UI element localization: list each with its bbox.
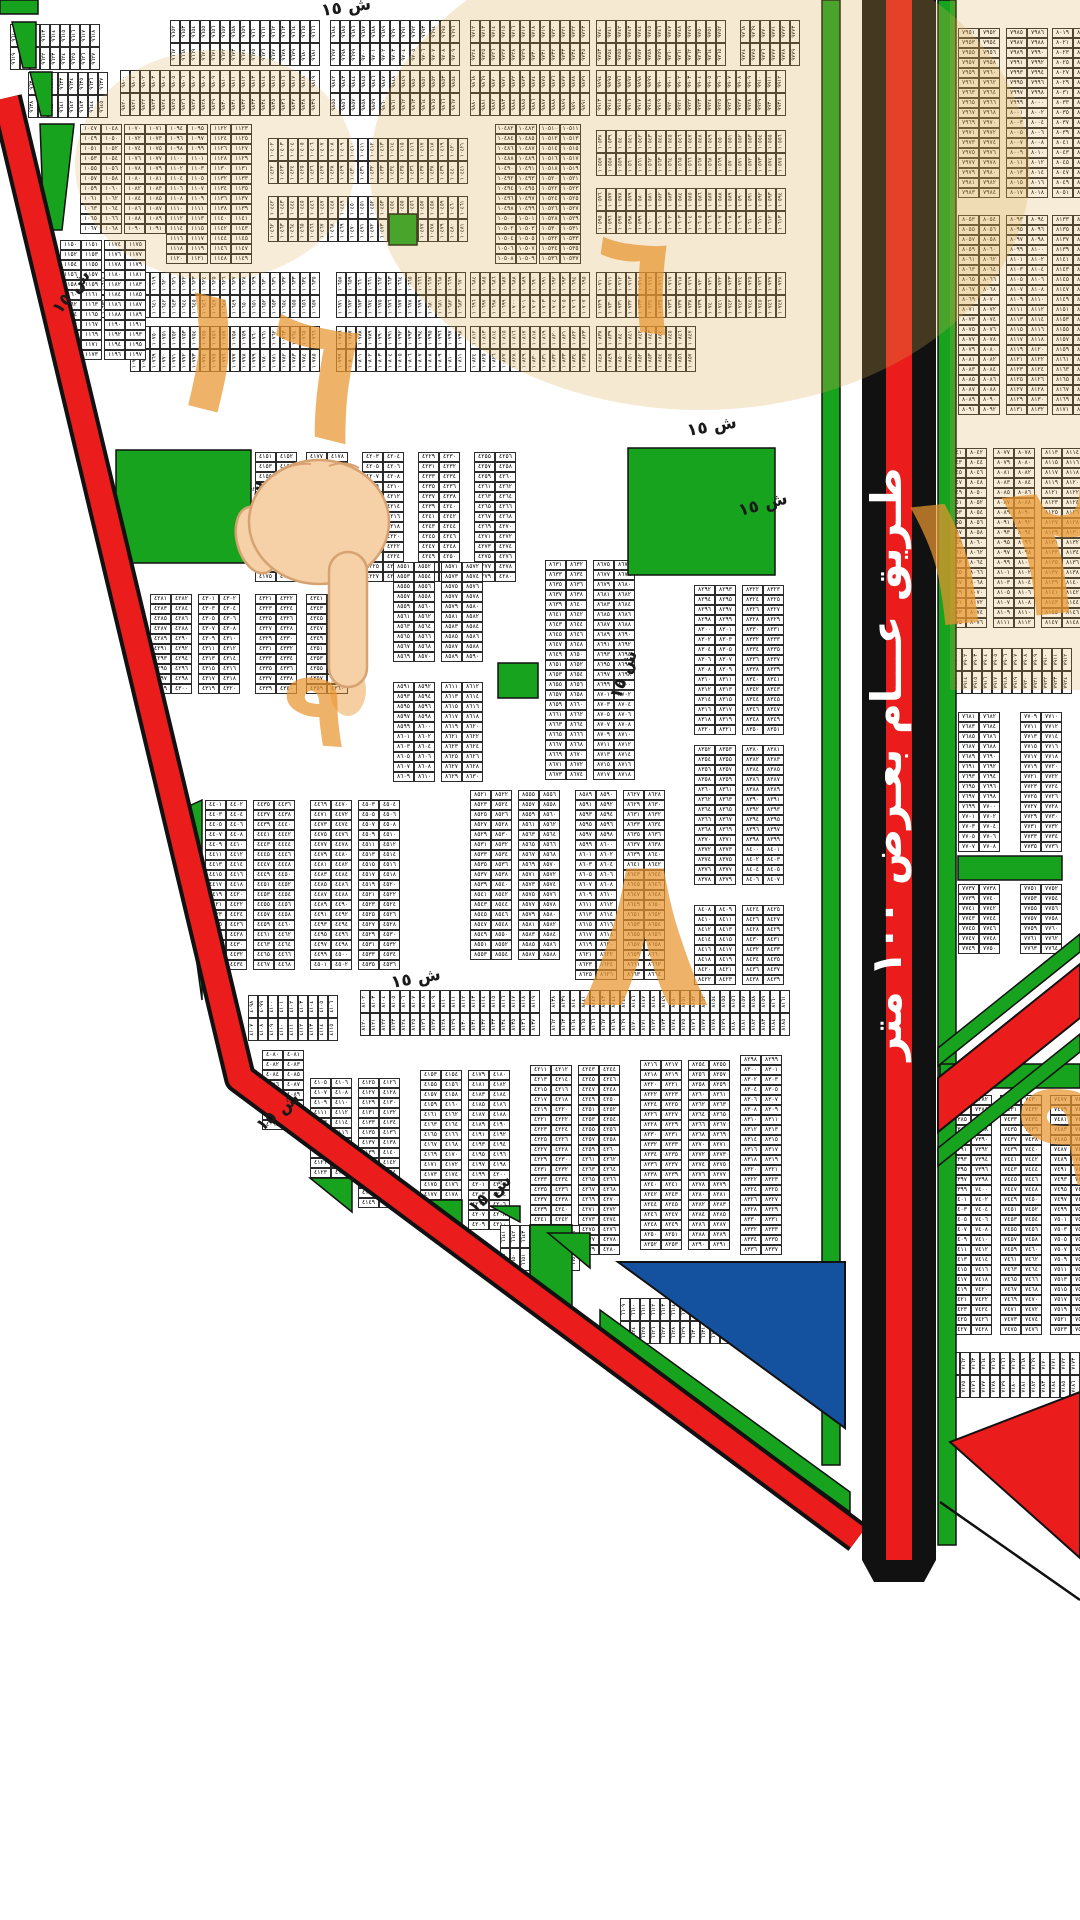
plot-cell[interactable]: ٨١٤٦ xyxy=(1073,275,1080,285)
plot-cell[interactable]: ١٠٧٥٨ xyxy=(230,326,240,349)
plot-cell[interactable]: ٨٤٣٥ xyxy=(763,955,784,965)
plot-cell[interactable]: ٨٦٨٩ xyxy=(593,630,614,640)
plot-cell[interactable]: ٧٤٥٣ xyxy=(1000,1215,1021,1225)
plot-cell[interactable]: ١٠٤٣٣ xyxy=(378,161,388,184)
plot-cell[interactable]: ٨٥٥٦ xyxy=(539,790,560,800)
plot-cell[interactable]: ٧٤٢٧ xyxy=(950,1325,971,1335)
plot-cell[interactable]: ٨٠٧١ xyxy=(958,305,979,315)
plot-cell[interactable]: ٩٦٧٣ xyxy=(230,43,240,66)
plot-cell[interactable]: ٤٤٣٦ xyxy=(274,800,295,810)
plot-cell[interactable]: ٤٢٨٥ xyxy=(150,614,171,624)
plot-cell[interactable]: ٤٣٢٨ xyxy=(276,624,297,634)
plot-cell[interactable]: ٨١١٨ xyxy=(1027,335,1048,345)
plot-cell[interactable]: ٤٢٢٢ xyxy=(551,1115,572,1125)
plot-cell[interactable]: ٩٦٨٩ xyxy=(380,20,390,43)
plot-cell[interactable]: ١١٩٥ xyxy=(125,340,146,350)
plot-cell[interactable]: ٤٤٦٥ xyxy=(253,950,274,960)
plot-cell[interactable]: ٧٤٠٥ xyxy=(950,1215,971,1225)
plot-cell[interactable]: ٤٤٠٦ xyxy=(226,820,247,830)
plot-cell[interactable]: ٨٥٧٩ xyxy=(518,910,539,920)
plot-cell[interactable]: ٨٥٨٨ xyxy=(539,950,560,960)
plot-cell[interactable]: ٤٤٨٢ xyxy=(331,860,352,870)
plot-cell[interactable]: ٨٢٤٥ xyxy=(661,1200,682,1210)
plot-cell[interactable]: ١٠٨٢٣ xyxy=(580,326,590,349)
plot-cell[interactable]: ١٠٥٢٧ xyxy=(560,204,581,214)
plot-cell[interactable]: ٤١١١ xyxy=(310,1108,331,1118)
plot-cell[interactable]: ٨٦١٣ xyxy=(441,692,462,702)
plot-cell[interactable]: ٤١٥١ xyxy=(255,452,276,462)
plot-cell[interactable]: ١٠٤١٨ xyxy=(428,138,438,161)
plot-cell[interactable]: ٨٣٨٦ xyxy=(742,775,763,785)
plot-cell[interactable]: ٨٦٢٧ xyxy=(441,762,462,772)
plot-cell[interactable]: ١١٧٢ xyxy=(60,350,81,360)
plot-cell[interactable]: ٤٢٣٨ xyxy=(551,1195,572,1205)
plot-cell[interactable]: ١٠٥٧٣ xyxy=(756,153,766,176)
plot-cell[interactable]: ٨٦٦١ xyxy=(623,960,644,970)
plot-cell[interactable]: ٨٣٠٨ xyxy=(740,1105,761,1115)
plot-cell[interactable]: ٩٦١٧ xyxy=(80,24,90,47)
plot-cell[interactable]: ٨١٢٢ xyxy=(1062,488,1080,498)
plot-cell[interactable]: ٨٤٢٣ xyxy=(715,975,736,985)
plot-cell[interactable]: ٤١٩٢ xyxy=(489,1130,510,1140)
plot-cell[interactable]: ٨٣٠٣ xyxy=(715,635,736,645)
plot-cell[interactable]: ٨٠٢٢ xyxy=(1073,38,1080,48)
plot-cell[interactable]: ٧٥٠٩ xyxy=(1050,1255,1071,1265)
plot-cell[interactable]: ١٠٥٧ xyxy=(80,174,101,184)
plot-cell[interactable]: ١٠٤٧٢ xyxy=(368,219,378,242)
plot-cell[interactable]: ١٠٧٢ xyxy=(124,134,145,144)
plot-cell[interactable]: ٤٥٢٧ xyxy=(358,920,379,930)
plot-cell[interactable]: ٨٠٦٠ xyxy=(979,245,1000,255)
plot-cell[interactable]: ٨١٥٤ xyxy=(710,990,720,1013)
plot-cell[interactable]: ٨١٠١ xyxy=(993,568,1014,578)
plot-cell[interactable]: ٧٤١٦ xyxy=(971,1265,992,1275)
plot-cell[interactable]: ٨١٤٤ xyxy=(1062,598,1080,608)
plot-cell[interactable]: ٨١٧٨ xyxy=(710,1013,720,1036)
plot-cell[interactable]: ٩٩٠٥ xyxy=(706,70,716,93)
plot-cell[interactable]: ٤٢٢٩ xyxy=(530,1155,551,1165)
plot-cell[interactable]: ١١٤٤ xyxy=(210,234,231,244)
plot-cell[interactable]: ١٠٤٥٢ xyxy=(368,196,378,219)
plot-cell[interactable]: ٨٠٨١ xyxy=(993,468,1014,478)
plot-cell[interactable]: ٤١٦٤ xyxy=(441,1120,462,1130)
plot-cell[interactable]: ١٠٥٠٩ xyxy=(516,254,537,264)
plot-cell[interactable]: ١٠٧٥٢ xyxy=(170,326,180,349)
plot-cell[interactable]: ٦٦٢٧ xyxy=(660,1321,670,1344)
plot-cell[interactable]: ٨٠٣٠ xyxy=(1073,78,1080,88)
plot-cell[interactable]: ٦٦٤٧ xyxy=(560,1225,570,1248)
plot-cell[interactable]: ٩٨٨٢ xyxy=(490,93,500,116)
plot-cell[interactable]: ٤١٧٧ xyxy=(420,1190,441,1200)
plot-cell[interactable]: ٨٢٥٩ xyxy=(709,1080,730,1090)
plot-cell[interactable]: ٧٥٠٥ xyxy=(1050,1235,1071,1245)
plot-cell[interactable]: ١٠٤١٥ xyxy=(398,138,408,161)
plot-cell[interactable]: ٤١٣٩ xyxy=(358,1148,379,1158)
plot-cell[interactable]: ١١٧٠ xyxy=(60,340,81,350)
plot-cell[interactable]: ١٠٨٧ xyxy=(145,204,166,214)
plot-cell[interactable]: ٧٧٥١ xyxy=(1020,884,1041,894)
plot-cell[interactable]: ٨٠٩٧ xyxy=(1006,235,1027,245)
plot-cell[interactable]: ٧٥٢٠ xyxy=(1071,1305,1080,1315)
plot-cell[interactable]: ١٠٤٣١ xyxy=(358,161,368,184)
plot-cell[interactable]: ١٠٧٢٦ xyxy=(756,272,766,295)
plot-cell[interactable]: ١٠٦٩٢ xyxy=(550,272,560,295)
plot-cell[interactable]: ٤٠٩١ xyxy=(283,1100,304,1110)
plot-cell[interactable]: ٨٦٤٤ xyxy=(644,870,665,880)
plot-cell[interactable]: ٤٢٥٨ xyxy=(599,1135,620,1145)
plot-cell[interactable]: ١٠٥١٥ xyxy=(560,144,581,154)
plot-cell[interactable]: ٨٢٣٣ xyxy=(661,1140,682,1150)
plot-cell[interactable]: ٨٠٣٨ xyxy=(1073,118,1080,128)
plot-cell[interactable]: ٤٤٨٦ xyxy=(331,880,352,890)
plot-cell[interactable]: ١٠٤٩٥ xyxy=(516,184,537,194)
plot-cell[interactable]: ١٠٤٤٦ xyxy=(308,196,318,219)
plot-cell[interactable]: ٨١٢٧ xyxy=(430,1013,440,1036)
plot-cell[interactable]: ٦٦٥١ xyxy=(520,1248,530,1271)
plot-cell[interactable]: ١٠٨٢٠ xyxy=(550,326,560,349)
plot-cell[interactable]: ٨٣٩٦ xyxy=(742,825,763,835)
plot-cell[interactable]: ٧٥١٢ xyxy=(1071,1265,1080,1275)
plot-cell[interactable]: ٤٢٥٣ xyxy=(578,1115,599,1125)
plot-cell[interactable]: ٨٢٨١ xyxy=(709,1190,730,1200)
plot-cell[interactable]: ١٠٥٠١ xyxy=(516,214,537,224)
plot-cell[interactable]: ١٠٥٩٨ xyxy=(626,211,636,234)
plot-cell[interactable]: ٧٩٧١ xyxy=(958,128,979,138)
plot-cell[interactable]: ٧٩٦٢ xyxy=(979,78,1000,88)
plot-cell[interactable]: ٨٣٢٦ xyxy=(740,1195,761,1205)
plot-cell[interactable]: ٨١٢١ xyxy=(1041,488,1062,498)
plot-cell[interactable]: ٨١٠٧ xyxy=(1006,285,1027,295)
plot-cell[interactable]: ٤١٣٠ xyxy=(379,1098,400,1108)
plot-cell[interactable]: ٧٣٩١ xyxy=(950,1145,971,1155)
plot-cell[interactable]: ٨١٣٣ xyxy=(1052,215,1073,225)
plot-cell[interactable]: ١٠٥٩٧ xyxy=(616,211,626,234)
plot-cell[interactable]: ١٠٧٧١ xyxy=(170,349,180,372)
plot-cell[interactable]: ٨١٤٤ xyxy=(610,990,620,1013)
plot-cell[interactable]: ٤١٠٠ xyxy=(268,995,278,1018)
plot-cell[interactable]: ٧٩١٤ xyxy=(962,671,972,694)
plot-cell[interactable]: ١٠٥٩٥ xyxy=(596,211,606,234)
plot-cell[interactable]: ٧٦٨٣ xyxy=(958,722,979,732)
plot-cell[interactable]: ١١٠٧ xyxy=(187,184,208,194)
plot-cell[interactable]: ٨١٢٦ xyxy=(420,1013,430,1036)
plot-cell[interactable]: ٤٢١٣ xyxy=(362,502,383,512)
plot-cell[interactable]: ٨٣٣٦ xyxy=(742,655,763,665)
plot-cell[interactable]: ٨٥٨٣ xyxy=(518,930,539,940)
plot-cell[interactable]: ٨٤٣٦ xyxy=(742,965,763,975)
plot-cell[interactable]: ٩٨١٢ xyxy=(240,70,250,93)
plot-cell[interactable]: ٩٩٣١ xyxy=(776,93,786,116)
plot-cell[interactable]: ١٠٩٩ xyxy=(187,144,208,154)
plot-cell[interactable]: ٤٢٨٩ xyxy=(150,634,171,644)
plot-cell[interactable]: ٤٢٤٠ xyxy=(439,502,460,512)
plot-cell[interactable]: ٨٤١٢ xyxy=(694,925,715,935)
plot-cell[interactable]: ٨٠٩٥ xyxy=(993,538,1014,548)
plot-cell[interactable]: ٨٥٣١ xyxy=(470,840,491,850)
plot-cell[interactable]: ٨١٣١ xyxy=(1006,405,1027,415)
plot-cell[interactable]: ٨٦٣٤ xyxy=(566,570,587,580)
plot-cell[interactable]: ٨٥٨٦ xyxy=(462,632,483,642)
plot-cell[interactable]: ٨٠٥٦ xyxy=(966,518,987,528)
plot-cell[interactable]: ٩٩٠٤ xyxy=(696,70,706,93)
plot-cell[interactable]: ٨٦١٦ xyxy=(462,702,483,712)
plot-cell[interactable]: ٨٢٣٧ xyxy=(661,1160,682,1170)
plot-cell[interactable]: ٤٢٤٨ xyxy=(599,1085,620,1095)
plot-cell[interactable]: ١٠٥١٤ xyxy=(539,144,560,154)
plot-cell[interactable]: ٧٤٥٧ xyxy=(1000,1235,1021,1245)
plot-cell[interactable]: ٨١٦٢ xyxy=(550,1013,560,1036)
plot-cell[interactable]: ٨١٠٥ xyxy=(993,588,1014,598)
plot-cell[interactable]: ٤٢٦١ xyxy=(578,1155,599,1165)
plot-cell[interactable]: ٩٦٥٩ xyxy=(240,20,250,43)
plot-cell[interactable]: ٤٣٠٠ xyxy=(171,684,192,694)
plot-cell[interactable]: ٨١٧٢ xyxy=(1073,405,1080,415)
plot-cell[interactable]: ٧٥١٠ xyxy=(1071,1255,1080,1265)
plot-cell[interactable]: ١٠٥٤٨ xyxy=(696,130,706,153)
plot-cell[interactable]: ٤١٤٥ xyxy=(358,1178,379,1188)
plot-cell[interactable]: ٤٤٩٢ xyxy=(331,910,352,920)
plot-cell[interactable]: ٤٢٩٧ xyxy=(150,674,171,684)
plot-cell[interactable]: ٨١٣٨ xyxy=(1073,235,1080,245)
plot-cell[interactable]: ٨٥٨٥ xyxy=(441,632,462,642)
plot-cell[interactable]: ٤٥٠٩ xyxy=(358,830,379,840)
plot-cell[interactable]: ٧٩٧٩ xyxy=(958,168,979,178)
plot-cell[interactable]: ٤٤٩٩ xyxy=(310,950,331,960)
plot-cell[interactable]: ١٠٤٦١ xyxy=(458,196,468,219)
plot-cell[interactable]: ٤١٩٧ xyxy=(468,1160,489,1170)
plot-cell[interactable]: ١١٦٩ xyxy=(81,330,102,340)
plot-cell[interactable]: ٩٧٣٣ xyxy=(560,43,570,66)
plot-cell[interactable]: ٤٤٥٤ xyxy=(274,890,295,900)
plot-cell[interactable]: ١٠٥٤٧ xyxy=(686,130,696,153)
plot-cell[interactable]: ١٠٨٤٠ xyxy=(616,326,626,349)
plot-cell[interactable]: ٤١٩٨ xyxy=(489,1160,510,1170)
plot-cell[interactable]: ٤٤١٠ xyxy=(226,840,247,850)
plot-cell[interactable]: ٩٩٠٨ xyxy=(736,70,746,93)
plot-cell[interactable]: ٨١١٦ xyxy=(1027,325,1048,335)
plot-cell[interactable]: ٩٩١٨ xyxy=(646,93,656,116)
plot-cell[interactable]: ٨٥٩٩ xyxy=(393,722,414,732)
plot-cell[interactable]: ٨٥٧٠ xyxy=(539,860,560,870)
plot-cell[interactable]: ٨٦٠٥ xyxy=(393,752,414,762)
plot-cell[interactable]: ١٠٨٤٤ xyxy=(656,326,666,349)
plot-cell[interactable]: ١٠٧٣٩ xyxy=(696,295,706,318)
plot-cell[interactable]: ٤٥٠٦ xyxy=(379,810,400,820)
plot-cell[interactable]: ١٠٤٦٩ xyxy=(338,219,348,242)
plot-cell[interactable]: ٨٦٢٩ xyxy=(441,772,462,782)
plot-cell[interactable]: ٩٨٤٥ xyxy=(360,70,370,93)
plot-cell[interactable]: ٧٩٠٣ xyxy=(972,648,982,671)
plot-cell[interactable]: ٤٤٧٩ xyxy=(310,850,331,860)
plot-cell[interactable]: ١١١٦ xyxy=(166,234,187,244)
plot-cell[interactable]: ٨٠٦٥ xyxy=(958,275,979,285)
plot-cell[interactable]: ٨٥٦٢ xyxy=(414,612,435,622)
plot-cell[interactable]: ١٠٧٩٥ xyxy=(426,326,436,349)
plot-cell[interactable]: ١٠٤٥٠ xyxy=(348,196,358,219)
plot-cell[interactable]: ٨٠٤٢ xyxy=(1073,138,1080,148)
plot-cell[interactable]: ٩٦٦٨ xyxy=(180,43,190,66)
plot-cell[interactable]: ١٠٥٦٨ xyxy=(706,153,716,176)
plot-cell[interactable]: ٨٦٤٠ xyxy=(566,600,587,610)
plot-cell[interactable]: ٨١٢٨ xyxy=(1027,385,1048,395)
plot-cell[interactable]: ٨٥٦٠ xyxy=(539,810,560,820)
plot-cell[interactable]: ٨٢٢٨ xyxy=(640,1120,661,1130)
plot-cell[interactable]: ٨٥٩٣ xyxy=(575,810,596,820)
plot-cell[interactable]: ٩٨٢٣ xyxy=(150,93,160,116)
plot-cell[interactable]: ١٠٩٠ xyxy=(124,224,145,234)
plot-cell[interactable]: ٨٦٣٧ xyxy=(545,590,566,600)
plot-cell[interactable]: ٧٧٠٢ xyxy=(979,812,1000,822)
plot-cell[interactable]: ٨٥٥١ xyxy=(470,940,491,950)
plot-cell[interactable]: ٩٨٠٤ xyxy=(160,70,170,93)
plot-cell[interactable]: ١٠٨٥٢ xyxy=(636,349,646,372)
plot-cell[interactable]: ١٠٦٧٥ xyxy=(376,295,386,318)
plot-cell[interactable]: ٤١٠٦ xyxy=(328,995,338,1018)
plot-cell[interactable]: ١١٦١ xyxy=(81,290,102,300)
plot-cell[interactable]: ٨٠٦٧ xyxy=(945,578,966,588)
plot-cell[interactable]: ١٠٦٧ xyxy=(80,224,101,234)
plot-cell[interactable]: ١٠٥٩٠ xyxy=(736,188,746,211)
plot-cell[interactable]: ٩٨٣٢ xyxy=(240,93,250,116)
plot-cell[interactable]: ٤٣٥٥ xyxy=(306,664,327,674)
plot-cell[interactable]: ٨١٥٦ xyxy=(1073,325,1080,335)
plot-cell[interactable]: ١١٥٩ xyxy=(81,280,102,290)
plot-cell[interactable]: ٨٢٢٥ xyxy=(661,1100,682,1110)
plot-cell[interactable]: ٨٦٢١ xyxy=(575,950,596,960)
plot-cell[interactable]: ١١٧٣ xyxy=(81,350,102,360)
plot-cell[interactable]: ١١٦٨ xyxy=(60,330,81,340)
plot-cell[interactable]: ٨١٢٨ xyxy=(1062,518,1080,528)
plot-cell[interactable]: ١٠٦٥٩ xyxy=(346,272,356,295)
plot-cell[interactable]: ١٠٦٦٤ xyxy=(396,272,406,295)
plot-cell[interactable]: ٨٣٥٧ xyxy=(715,765,736,775)
plot-cell[interactable]: ٨٠٣١ xyxy=(1052,88,1073,98)
plot-cell[interactable]: ٨٢٧٤ xyxy=(688,1160,709,1170)
plot-cell[interactable]: ٩٦٦٩ xyxy=(190,43,200,66)
plot-cell[interactable]: ٧٦٩٤ xyxy=(979,772,1000,782)
plot-cell[interactable]: ٧٥١٦ xyxy=(1071,1285,1080,1295)
plot-cell[interactable]: ٨٦٣٧ xyxy=(623,840,644,850)
plot-cell[interactable]: ٨٥٤٤ xyxy=(491,900,512,910)
plot-cell[interactable]: ٨٢٩٩ xyxy=(761,1055,782,1065)
plot-cell[interactable]: ٤٢٣١ xyxy=(530,1165,551,1175)
plot-cell[interactable]: ٨٠٦٧ xyxy=(958,285,979,295)
plot-cell[interactable]: ٤١٦٧ xyxy=(420,1140,441,1150)
plot-cell[interactable]: ٤٥٠٨ xyxy=(379,820,400,830)
plot-cell[interactable]: ٤٥١٨ xyxy=(379,870,400,880)
plot-cell[interactable]: ٤٤١٤ xyxy=(226,860,247,870)
plot-cell[interactable]: ٩٨٢٨ xyxy=(200,93,210,116)
plot-cell[interactable]: ١٠٦٠٢ xyxy=(666,211,676,234)
plot-cell[interactable]: ٨٦٩٤ xyxy=(614,650,635,660)
plot-cell[interactable]: ١٠٧٠ xyxy=(124,124,145,134)
plot-cell[interactable]: ٨٣٢١ xyxy=(715,725,736,735)
plot-cell[interactable]: ١٠٩١ xyxy=(145,224,166,234)
plot-cell[interactable]: ١٠٥٢٦ xyxy=(539,204,560,214)
plot-cell[interactable]: ٨١٠٩ xyxy=(1006,295,1027,305)
plot-cell[interactable]: ١٠٧٣١ xyxy=(616,295,626,318)
plot-cell[interactable]: ١٠٦٤٤ xyxy=(180,295,190,318)
plot-cell[interactable]: ٤٥١٢ xyxy=(379,840,400,850)
plot-cell[interactable]: ١٠٤٣٤ xyxy=(388,161,398,184)
plot-cell[interactable]: ٤٤٣٠ xyxy=(226,940,247,950)
plot-cell[interactable]: ١٠٥٣٦ xyxy=(539,254,560,264)
plot-cell[interactable]: ٩٧٧٨ xyxy=(780,43,790,66)
plot-cell[interactable]: ٧١٦٤ xyxy=(980,1352,990,1375)
plot-cell[interactable]: ٤٢٠١ xyxy=(306,572,327,582)
plot-cell[interactable]: ١٠٧٢٩ xyxy=(596,295,606,318)
plot-cell[interactable]: ٨٦٢٢ xyxy=(596,950,617,960)
plot-cell[interactable]: ٩٦٧٥ xyxy=(250,43,260,66)
plot-cell[interactable]: ٨٠٢٠ xyxy=(1073,28,1080,38)
plot-cell[interactable]: ٧٣٩٥ xyxy=(950,1165,971,1175)
plot-cell[interactable]: ٤١٦٠ xyxy=(276,492,297,502)
plot-cell[interactable]: ٨٠٩١ xyxy=(958,405,979,415)
plot-cell[interactable]: ٩٧٤٩ xyxy=(686,20,696,43)
plot-cell[interactable]: ١٠٥٠٠ xyxy=(495,214,516,224)
plot-cell[interactable]: ٨٦٦٠ xyxy=(566,700,587,710)
plot-cell[interactable]: ٩٧٥٥ xyxy=(616,43,626,66)
plot-cell[interactable]: ٨١٠٥ xyxy=(390,990,400,1013)
plot-cell[interactable]: ٧٩٩٠ xyxy=(1027,48,1048,58)
plot-cell[interactable]: ٨٦٧٩ xyxy=(593,580,614,590)
plot-cell[interactable]: ٨٠١٦ xyxy=(1027,178,1048,188)
plot-cell[interactable]: ٨٤٣١ xyxy=(763,935,784,945)
plot-cell[interactable]: ١٠٤٠٣ xyxy=(278,138,288,161)
plot-cell[interactable]: ٨٥٨٢ xyxy=(539,920,560,930)
plot-cell[interactable]: ٤١٥٤ xyxy=(441,1070,462,1080)
plot-cell[interactable]: ٤١٩٩ xyxy=(468,1170,489,1180)
plot-cell[interactable]: ١٠٦٢٧ xyxy=(230,272,240,295)
plot-cell[interactable]: ١٠٨٢٩ xyxy=(520,349,530,372)
plot-cell[interactable]: ٨١٧٩ xyxy=(720,1013,730,1036)
plot-cell[interactable]: ٨٥٤٢ xyxy=(491,890,512,900)
plot-cell[interactable]: ٨١٤٥ xyxy=(1052,275,1073,285)
plot-cell[interactable]: ٤٣٣٤ xyxy=(276,654,297,664)
plot-cell[interactable]: ١٠٥٤٩ xyxy=(706,130,716,153)
plot-cell[interactable]: ٤٢٢٥ xyxy=(530,1135,551,1145)
plot-cell[interactable]: ١٠٥٧٧ xyxy=(606,188,616,211)
plot-cell[interactable]: ٤١٨١ xyxy=(468,1080,489,1090)
plot-cell[interactable]: ١٠٥٣٨ xyxy=(596,130,606,153)
plot-cell[interactable]: ١٠٤٨١ xyxy=(458,219,468,242)
plot-cell[interactable]: ٤٢٨٠ xyxy=(599,1245,620,1255)
plot-cell[interactable]: ٧٤١٧ xyxy=(950,1275,971,1285)
plot-cell[interactable]: ٩٦٥٤ xyxy=(190,20,200,43)
plot-cell[interactable]: ٨٦١٣ xyxy=(575,910,596,920)
plot-cell[interactable]: ٤٣٢٠ xyxy=(219,684,240,694)
plot-cell[interactable]: ١٠٧٥٤ xyxy=(190,326,200,349)
plot-cell[interactable]: ٤١٩١ xyxy=(468,1130,489,1140)
plot-cell[interactable]: ٤٣١٤ xyxy=(219,654,240,664)
plot-cell[interactable]: ١٠٧٤١ xyxy=(716,295,726,318)
plot-cell[interactable]: ٩٨٣٧ xyxy=(290,93,300,116)
plot-cell[interactable]: ٨٥٧٧ xyxy=(441,592,462,602)
plot-cell[interactable]: ١٠٦٦٦ xyxy=(416,272,426,295)
plot-cell[interactable]: ١٠٥٤٥ xyxy=(666,130,676,153)
plot-cell[interactable]: ٨٦٢٥ xyxy=(441,752,462,762)
plot-cell[interactable]: ١٠٧٦٤ xyxy=(290,326,300,349)
plot-cell[interactable]: ٤٤٩٤ xyxy=(331,920,352,930)
plot-cell[interactable]: ٨٣٧٠ xyxy=(694,835,715,845)
plot-cell[interactable]: ٤٣٣٢ xyxy=(276,644,297,654)
plot-cell[interactable]: ١٠٦١٩ xyxy=(150,272,160,295)
plot-cell[interactable]: ٨٥٨٩ xyxy=(575,790,596,800)
plot-cell[interactable]: ٨٢١٩ xyxy=(661,1070,682,1080)
plot-cell[interactable]: ٧٤٠٠ xyxy=(971,1185,992,1195)
plot-cell[interactable]: ٤٣١٧ xyxy=(198,674,219,684)
plot-cell[interactable]: ٧١٦٩ xyxy=(1030,1352,1040,1375)
